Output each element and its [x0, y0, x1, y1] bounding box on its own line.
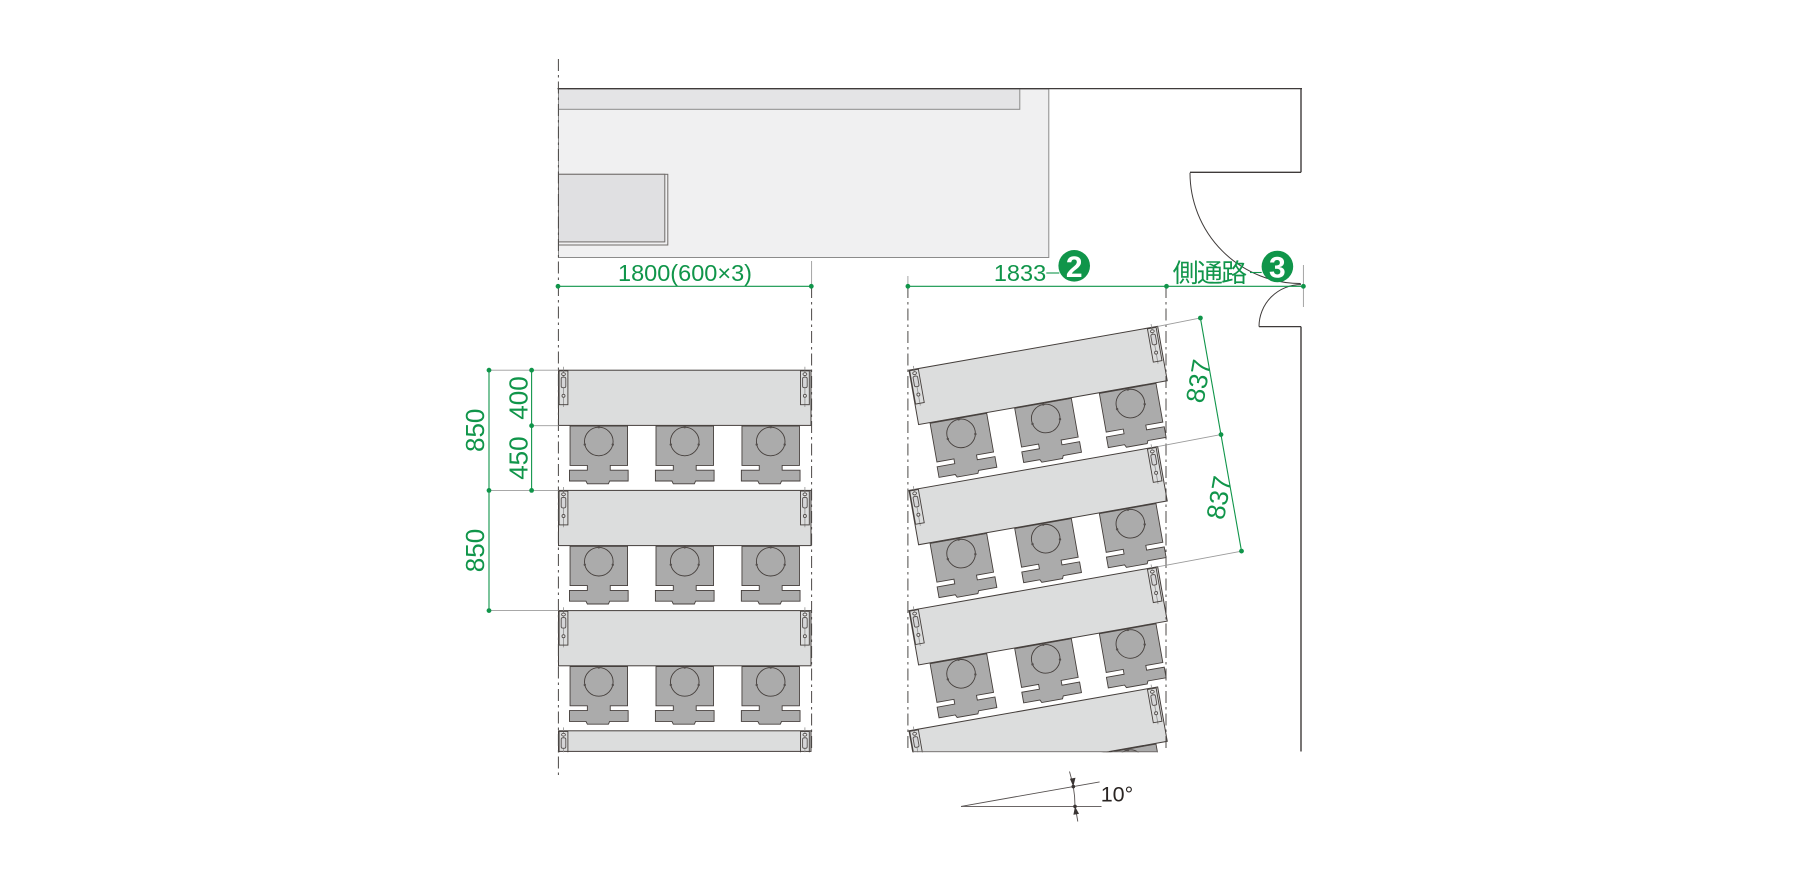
svg-text:1800(600×3): 1800(600×3)	[618, 260, 752, 286]
svg-text:3: 3	[1269, 252, 1286, 285]
svg-text:850: 850	[460, 529, 490, 572]
svg-text:1833: 1833	[994, 260, 1046, 286]
svg-text:2: 2	[1066, 251, 1083, 284]
svg-text:400: 400	[504, 376, 534, 419]
svg-text:10°: 10°	[1101, 783, 1134, 807]
svg-text:850: 850	[460, 409, 490, 452]
svg-text:450: 450	[504, 436, 534, 479]
